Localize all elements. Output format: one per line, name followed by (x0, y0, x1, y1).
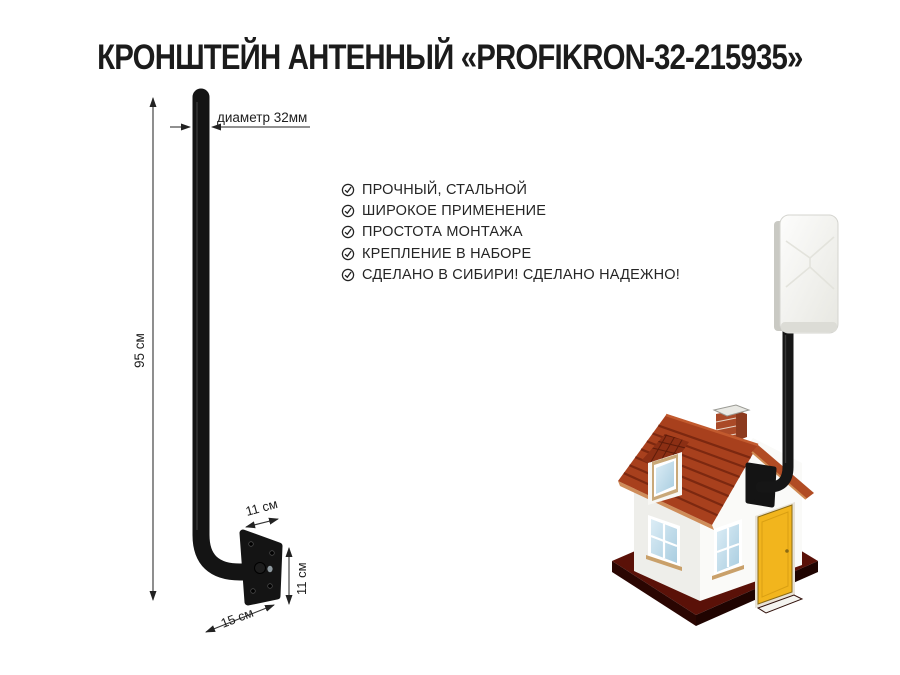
product-image: КРОНШТЕЙН АНТЕННЫЙ «PROFIKRON-32-215935»… (0, 0, 900, 675)
feature-label: ШИРОКОЕ ПРИМЕНЕНИЕ (362, 203, 546, 219)
plate-bolt-hole (268, 584, 273, 589)
check-circle-icon (341, 183, 355, 197)
check-circle-icon (341, 225, 355, 239)
dimension-line-11cm-top (246, 519, 278, 527)
dimension-11cm-top-label: 11 см (244, 496, 279, 519)
plate-bolt-hole (270, 551, 275, 556)
check-circle-icon (341, 247, 355, 261)
plate-bolt-hole (249, 542, 254, 547)
plate-hub (255, 563, 266, 574)
plate-bolt-hole (251, 589, 256, 594)
page-title-text: КРОНШТЕЙН АНТЕННЫЙ «PROFIKRON-32-215935» (97, 38, 802, 78)
antenna-panel-lip (781, 322, 837, 332)
feature-label: КРЕПЛЕНИЕ В НАБОРЕ (362, 246, 531, 262)
page-title: КРОНШТЕЙН АНТЕННЫЙ «PROFIKRON-32-215935» (0, 38, 900, 78)
dimension-95cm-label: 95 см (132, 333, 147, 368)
feature-label: ПРОСТОТА МОНТАЖА (362, 224, 523, 240)
door (758, 505, 792, 604)
plate-hub-highlight (267, 566, 272, 572)
check-circle-icon (341, 268, 355, 282)
dimension-diameter-label: диаметр 32мм (217, 110, 307, 125)
bracket-dimension-diagram: 95 см диаметр 32мм 11 см 11 см 15 см (120, 80, 335, 650)
house-antenna-illustration (590, 195, 890, 665)
check-circle-icon (341, 204, 355, 218)
chimney-side (736, 410, 747, 441)
antenna-panel (780, 215, 838, 333)
dimension-15cm-label: 15 см (219, 605, 256, 631)
bracket-pole (201, 97, 252, 572)
door-knob (785, 549, 789, 553)
dimension-11cm-side-label: 11 см (294, 562, 309, 595)
feature-label: ПРОЧНЫЙ, СТАЛЬНОЙ (362, 182, 527, 198)
